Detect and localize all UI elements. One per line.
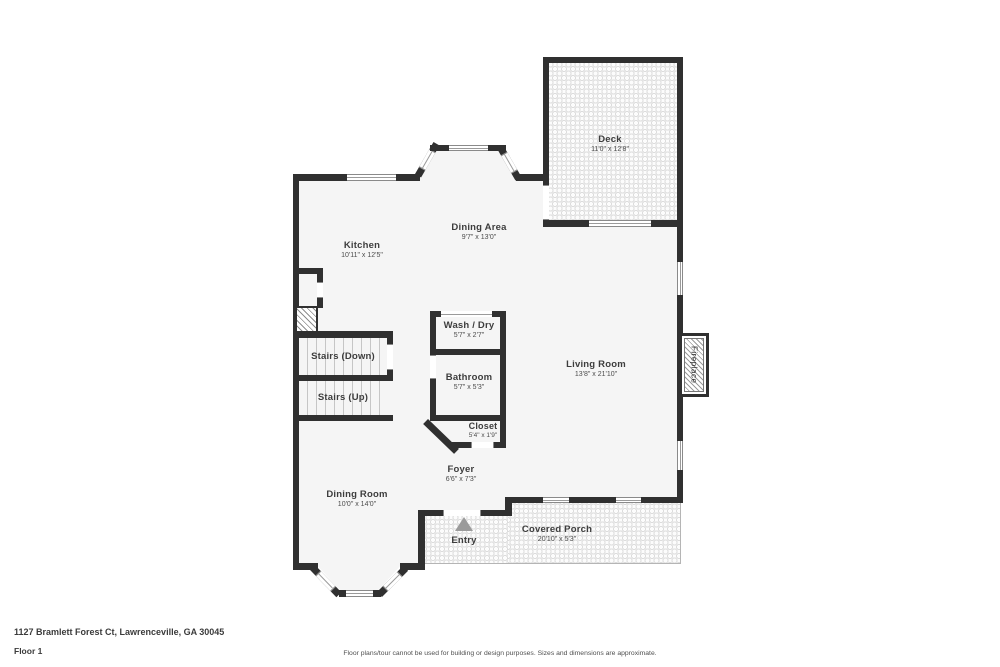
- wall-segment: [677, 57, 683, 227]
- room-label-kitchen: Kitchen 10'11" x 12'5": [341, 240, 383, 259]
- wall-segment: [500, 311, 506, 448]
- room-label-living-room: Living Room 13'8" x 21'10": [566, 359, 626, 378]
- door-opening: [430, 355, 436, 379]
- room-label-bathroom: Bathroom 5'7" x 5'3": [446, 372, 492, 391]
- room-label-wash-dry: Wash / Dry 5'7" x 2'7": [444, 320, 495, 339]
- wall-segment: [387, 370, 393, 381]
- wall-segment: [418, 510, 425, 570]
- wall-segment: [543, 57, 549, 185]
- door-opening: [543, 185, 549, 220]
- door-opening: [317, 282, 323, 298]
- fireplace-label: Fireplace: [682, 336, 706, 394]
- wall-segment: [543, 57, 683, 63]
- window: [449, 145, 488, 151]
- window: [677, 441, 683, 470]
- wall-segment: [293, 415, 393, 421]
- door-opening: [387, 344, 393, 370]
- floor-area-dining-room: [296, 500, 422, 566]
- room-label-foyer: Foyer 6'6" x 7'3": [446, 464, 477, 483]
- wall-segment: [505, 497, 683, 503]
- entry-arrow-icon: [455, 517, 473, 531]
- wall-segment: [293, 375, 393, 381]
- room-label-stairs-down: Stairs (Down): [311, 351, 375, 362]
- window: [616, 497, 641, 503]
- wall-segment: [400, 563, 425, 570]
- chimney-hatch: [295, 306, 318, 333]
- wall-segment: [293, 174, 299, 570]
- room-label-closet: Closet 5'4" x 1'9": [469, 421, 498, 439]
- window: [346, 590, 373, 597]
- room-label-entry: Entry: [451, 535, 476, 546]
- wall-segment: [430, 349, 506, 355]
- window: [677, 262, 683, 295]
- floor-plan: Fireplace Deck 11'0" x 12'8" Dining Area…: [0, 0, 1000, 667]
- door-opening: [443, 510, 481, 516]
- window: [589, 220, 651, 227]
- window: [543, 497, 569, 503]
- room-label-covered-porch: Covered Porch 20'10" x 5'3": [522, 524, 592, 543]
- floor-label: Floor 1: [14, 646, 42, 656]
- wall-segment: [293, 563, 318, 570]
- room-label-stairs-up: Stairs (Up): [318, 392, 368, 403]
- room-label-dining-room: Dining Room 10'0" x 14'0": [326, 489, 387, 508]
- room-label-deck: Deck 11'0" x 12'8": [591, 134, 629, 153]
- wall-segment: [387, 331, 393, 344]
- fireplace: Fireplace: [679, 333, 709, 397]
- window: [347, 174, 396, 181]
- room-label-dining-area: Dining Area 9'7" x 13'0": [451, 222, 506, 241]
- wall-segment: [317, 268, 323, 282]
- disclaimer-text: Floor plans/tour cannot be used for buil…: [343, 650, 656, 657]
- cased-opening: [441, 311, 492, 317]
- floor-plan-page: Fireplace Deck 11'0" x 12'8" Dining Area…: [0, 0, 1000, 667]
- address-text: 1127 Bramlett Forest Ct, Lawrenceville, …: [14, 627, 224, 637]
- door-opening: [471, 442, 494, 448]
